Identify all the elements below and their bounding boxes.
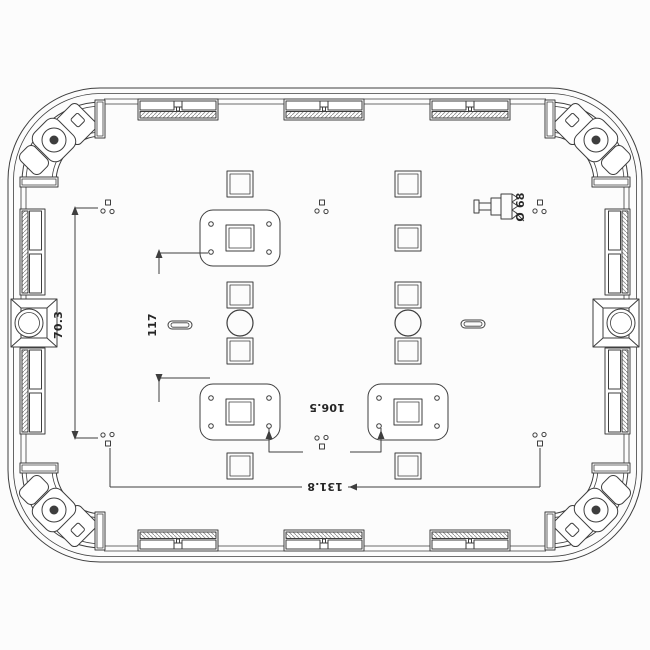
mounting-pad-right-bottom: [368, 384, 448, 440]
label-dim-117: 117: [146, 313, 159, 337]
right-module-1: [605, 209, 630, 295]
top-module-1: [138, 99, 218, 120]
right-speaker-module: [593, 299, 639, 347]
label-dim-70-3: 70.3: [52, 311, 65, 339]
label-dim-131-8: 131.8: [307, 480, 343, 493]
bottom-module-1: [138, 530, 218, 551]
top-module-2: [284, 99, 364, 120]
page-background: [0, 0, 650, 650]
lightbar-base-drawing: 70.3 117 106.5 131.8 Ø 68: [0, 0, 650, 650]
bottom-module-3: [430, 530, 510, 551]
mounting-pad-left-bottom: [200, 384, 280, 440]
top-module-3: [430, 99, 510, 120]
right-module-2: [605, 348, 630, 434]
left-module-1: [20, 209, 45, 295]
label-dim-106-5: 106.5: [309, 401, 345, 414]
technical-drawing-page: 70.3 117 106.5 131.8 Ø 68: [0, 0, 650, 650]
mounting-pad-left-top: [200, 210, 280, 266]
label-dim-diameter: Ø 68: [514, 192, 527, 221]
bottom-module-2: [284, 530, 364, 551]
left-module-2: [20, 348, 45, 434]
left-speaker-module: [11, 299, 57, 347]
